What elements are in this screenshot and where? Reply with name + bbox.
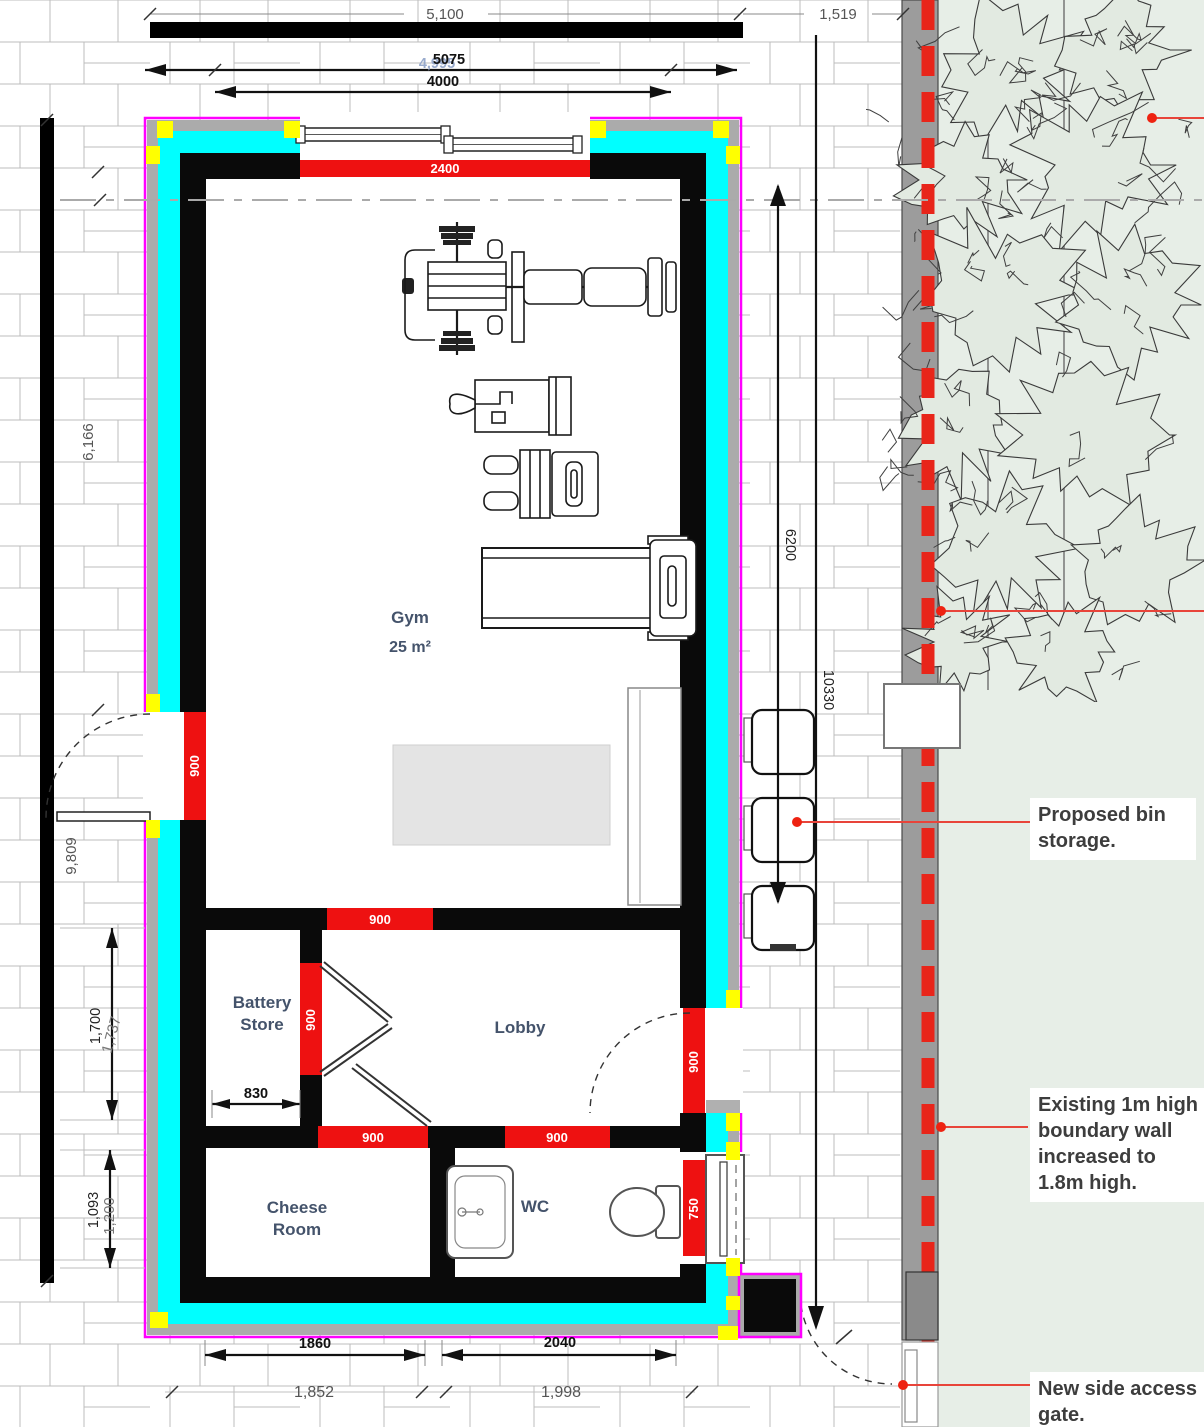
dim-top-wall: 5,100	[426, 6, 464, 23]
wc-window-opening: 750	[680, 1152, 744, 1264]
gym-counter	[628, 688, 681, 905]
room-gym-label: Gym	[391, 608, 429, 627]
room-cheese-label-2: Room	[273, 1220, 321, 1239]
dim-right-outer: 10330	[820, 670, 836, 710]
bin-tab	[744, 718, 752, 762]
annotation-side-gate: New side access gate.	[1030, 1372, 1204, 1427]
door-left-dim: 900	[187, 755, 202, 777]
dim-left-upper: 6,166	[80, 423, 97, 461]
left-fence	[40, 118, 54, 1283]
room-wc-label: WC	[521, 1197, 549, 1216]
dim-overall-width: 5075	[433, 52, 465, 68]
door-leaf	[57, 812, 150, 821]
annotation-bin-storage: Proposed bin storage.	[1030, 798, 1196, 860]
top-window-opening: 2400	[296, 112, 590, 179]
annotation-boundary-wall: Existing 1m high boundary wall increased…	[1030, 1088, 1204, 1202]
dim-bottom-door-left: 1860	[299, 1336, 331, 1352]
window-cap	[444, 136, 453, 153]
door-lobby-right-dim: 900	[686, 1051, 701, 1073]
existing-gate-post	[884, 684, 960, 748]
room-lobby-label: Lobby	[495, 1018, 547, 1037]
room-cheese-label-1: Cheese	[267, 1198, 327, 1217]
floor-plan-canvas: 2400 900 900 750	[0, 0, 1204, 1427]
door-cheese-dim: 900	[362, 1130, 384, 1145]
opening-dim-2400: 2400	[431, 161, 460, 176]
gym-lobby-wall	[206, 908, 680, 930]
window-wc-dim: 750	[686, 1198, 701, 1220]
wc-window-sash	[720, 1162, 727, 1256]
dim-left-outer: 9,809	[63, 837, 80, 875]
lobby-door-step	[706, 1100, 740, 1113]
bin-tab	[744, 806, 752, 850]
wc-toilet-bowl	[610, 1188, 664, 1236]
top-fence	[150, 22, 743, 38]
wall-block	[906, 1272, 938, 1340]
room-gym-area: 25 m²	[389, 639, 431, 656]
door-wc-dim: 900	[546, 1130, 568, 1145]
window-cap	[573, 136, 582, 153]
bin-tab	[744, 894, 752, 938]
dim-battery-width: 830	[244, 1086, 268, 1102]
corner-pillar	[739, 1274, 801, 1337]
treadmill	[482, 536, 696, 640]
dim-bottom-right-alt: 1,998	[541, 1384, 581, 1401]
bin-1	[752, 710, 814, 774]
room-battery-label-1: Battery	[233, 993, 292, 1012]
bin-3	[752, 886, 814, 950]
plan-drawing: 2400 900 900 750	[0, 0, 1204, 1427]
dim-cheese-height: 1,093	[86, 1192, 102, 1228]
room-battery-label-2: Store	[240, 1015, 283, 1034]
dim-right-inner: 6200	[782, 529, 798, 561]
bin-handle	[770, 944, 796, 951]
dim-top-right: 1,519	[819, 6, 857, 23]
dim-bottom-door-right: 2040	[544, 1335, 576, 1351]
gym-mat	[393, 745, 610, 845]
dim-inner-width: 4000	[427, 74, 459, 90]
dim-bottom-left-alt: 1,852	[294, 1384, 334, 1401]
pillar-core	[744, 1279, 796, 1332]
bin-2	[752, 798, 814, 862]
door-gym-lobby-dim: 900	[369, 912, 391, 927]
dim-cheese-height-alt: 1,200	[101, 1197, 118, 1235]
door-battery-dim: 900	[303, 1009, 318, 1031]
